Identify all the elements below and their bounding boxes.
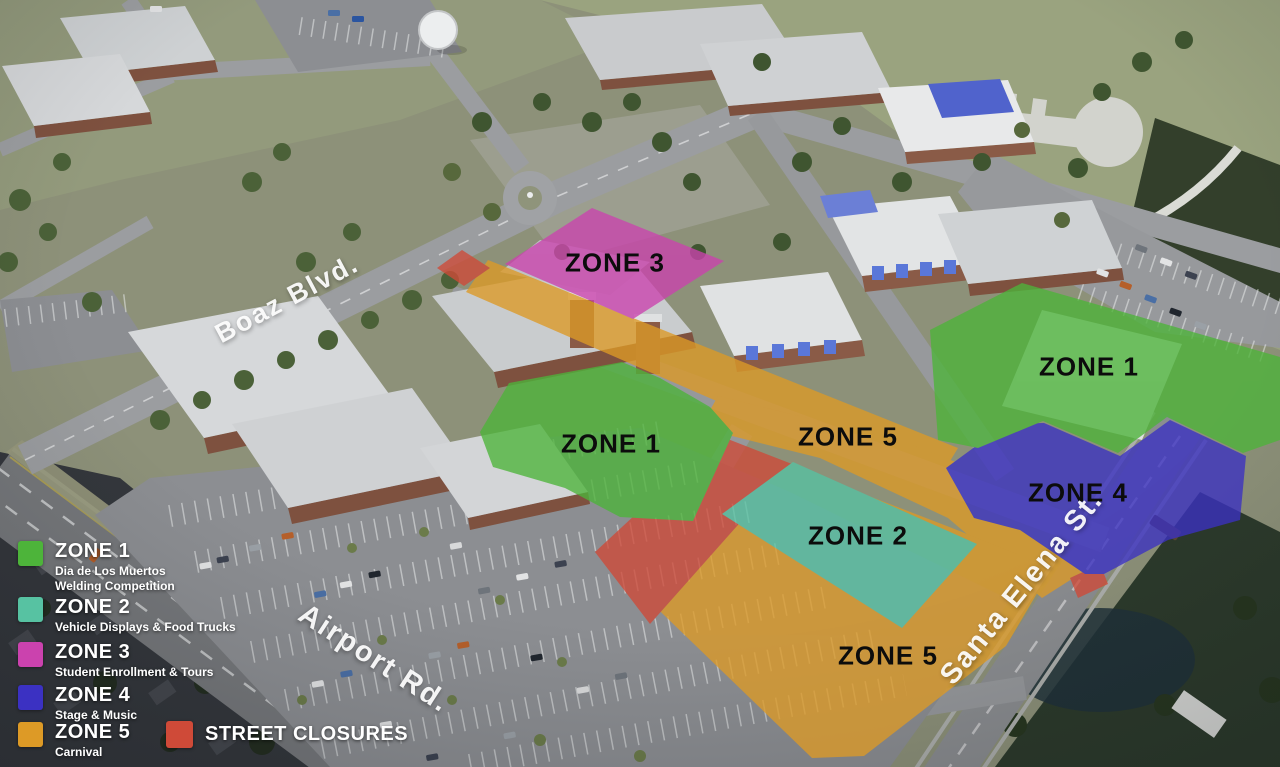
zone3-area-label: ZONE 3 [565, 248, 665, 279]
zone5-lower-area-label: ZONE 5 [838, 641, 938, 672]
zone5-upper-area-label: ZONE 5 [798, 422, 898, 453]
zone1-west-area-label: ZONE 1 [561, 429, 661, 460]
campus-event-zone-map: ZONE 3 ZONE 1 ZONE 5 ZONE 1 ZONE 2 ZONE … [0, 0, 1280, 767]
zone1-east-area-label: ZONE 1 [1039, 352, 1139, 383]
campus-map-illustration [0, 0, 1280, 767]
zone2-area-label: ZONE 2 [808, 521, 908, 552]
